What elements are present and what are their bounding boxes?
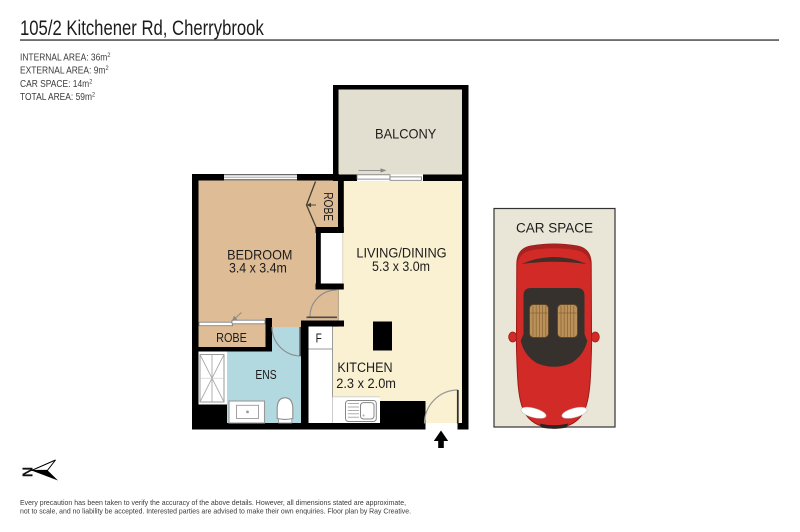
svg-text:ROBE: ROBE (321, 192, 334, 221)
svg-text:KITCHEN: KITCHEN (337, 359, 392, 375)
svg-text:INTERNAL AREA: 36m2: INTERNAL AREA: 36m2 (20, 51, 111, 63)
svg-text:F: F (316, 332, 322, 346)
svg-text:EXTERNAL AREA: 9m2: EXTERNAL AREA: 9m2 (20, 64, 109, 76)
svg-text:ENS: ENS (255, 368, 276, 382)
svg-text:not to scale, and no liability: not to scale, and no liability be accept… (20, 507, 411, 516)
svg-text:5.3 x 3.0m: 5.3 x 3.0m (372, 258, 430, 274)
svg-text:TOTAL AREA: 59m2: TOTAL AREA: 59m2 (20, 90, 96, 102)
svg-text:CAR SPACE: CAR SPACE (516, 221, 593, 236)
svg-text:105/2 Kitchener Rd, Cherrybroo: 105/2 Kitchener Rd, Cherrybrook (20, 17, 264, 40)
svg-text:2.3 x 2.0m: 2.3 x 2.0m (336, 375, 396, 391)
svg-text:CAR SPACE: 14m2: CAR SPACE: 14m2 (20, 77, 93, 89)
svg-text:ROBE: ROBE (216, 331, 247, 345)
svg-text:3.4 x 3.4m: 3.4 x 3.4m (229, 260, 287, 276)
svg-text:N: N (20, 467, 37, 478)
svg-text:BALCONY: BALCONY (375, 126, 436, 142)
svg-text:Every precaution has been take: Every precaution has been taken to verif… (20, 498, 406, 507)
